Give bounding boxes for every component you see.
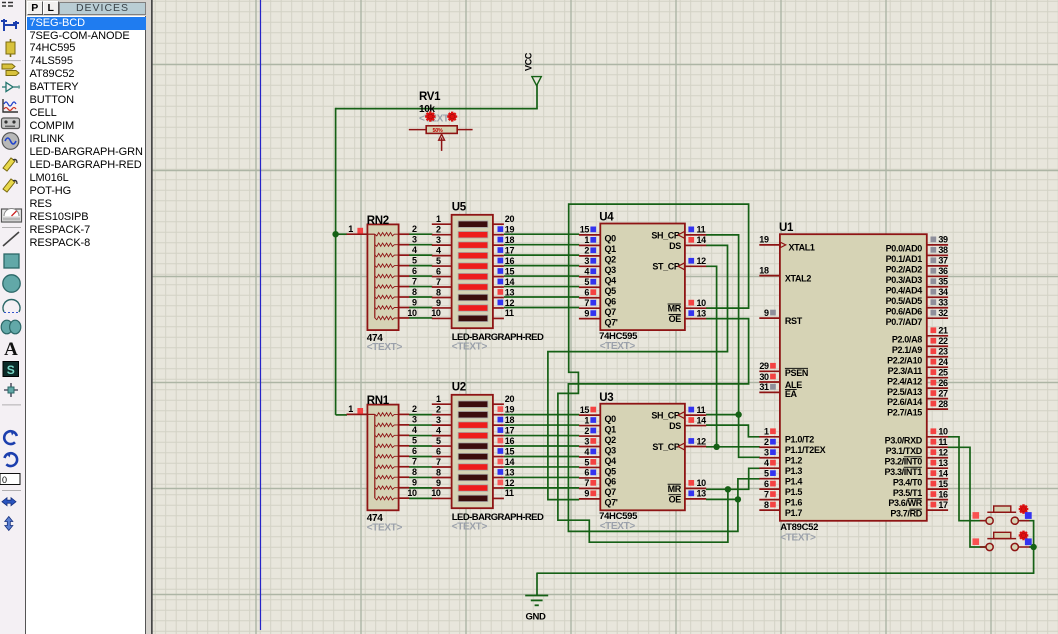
- svg-text:GND: GND: [526, 612, 547, 623]
- svg-text:37: 37: [938, 256, 948, 266]
- svg-text:19: 19: [505, 224, 515, 234]
- svg-text:14: 14: [697, 415, 707, 425]
- svg-text:Q7': Q7': [605, 317, 618, 327]
- svg-text:ST_CP: ST_CP: [652, 442, 680, 452]
- svg-text:U4: U4: [599, 212, 614, 224]
- svg-text:<TEXT>: <TEXT>: [600, 341, 636, 352]
- svg-text:<TEXT>: <TEXT>: [600, 521, 636, 532]
- svg-text:15: 15: [505, 266, 515, 276]
- svg-text:4: 4: [584, 267, 589, 277]
- svg-text:11: 11: [697, 225, 706, 235]
- svg-text:Q2: Q2: [605, 255, 617, 265]
- svg-text:9: 9: [764, 308, 769, 318]
- svg-text:P1.0/T2: P1.0/T2: [785, 435, 814, 445]
- svg-text:9: 9: [412, 297, 417, 307]
- svg-text:6: 6: [412, 266, 417, 276]
- svg-text:OE: OE: [669, 314, 682, 324]
- svg-text:18: 18: [505, 235, 515, 245]
- svg-text:3: 3: [436, 415, 441, 425]
- svg-text:17: 17: [505, 425, 515, 435]
- svg-text:P1.6: P1.6: [785, 497, 802, 507]
- svg-text:5: 5: [412, 436, 417, 446]
- svg-text:9: 9: [412, 477, 417, 487]
- svg-text:RN1: RN1: [367, 395, 390, 407]
- svg-text:<TEXT>: <TEXT>: [452, 522, 488, 533]
- svg-text:1: 1: [348, 404, 353, 414]
- svg-text:MR: MR: [668, 484, 682, 494]
- svg-text:15: 15: [580, 405, 590, 415]
- svg-text:14: 14: [938, 468, 948, 478]
- svg-text:ST_CP: ST_CP: [652, 262, 680, 272]
- svg-text:16: 16: [938, 489, 948, 499]
- svg-text:2: 2: [764, 437, 769, 447]
- svg-text:Q4: Q4: [605, 276, 617, 286]
- svg-text:1: 1: [348, 224, 353, 234]
- svg-text:3: 3: [412, 234, 417, 244]
- svg-text:MR: MR: [668, 304, 682, 314]
- svg-text:P0.6/AD6: P0.6/AD6: [886, 306, 923, 316]
- svg-text:Q3: Q3: [605, 265, 617, 275]
- svg-text:16: 16: [505, 256, 515, 266]
- svg-text:10: 10: [697, 478, 707, 488]
- svg-text:P2.4/A12: P2.4/A12: [887, 376, 922, 386]
- svg-text:14: 14: [505, 277, 515, 287]
- svg-text:U5: U5: [452, 201, 467, 213]
- svg-text:5: 5: [584, 457, 589, 467]
- svg-text:<TEXT>: <TEXT>: [367, 522, 403, 533]
- svg-text:15: 15: [938, 479, 948, 489]
- svg-text:16: 16: [505, 436, 515, 446]
- svg-text:50%: 50%: [433, 128, 443, 134]
- svg-text:7: 7: [436, 457, 441, 467]
- svg-text:14: 14: [505, 457, 515, 467]
- svg-text:8: 8: [412, 467, 417, 477]
- svg-text:3: 3: [436, 235, 441, 245]
- svg-text:Q4: Q4: [605, 456, 617, 466]
- svg-text:11: 11: [697, 405, 706, 415]
- svg-text:2: 2: [412, 224, 417, 234]
- svg-text:3: 3: [764, 448, 769, 458]
- svg-text:12: 12: [505, 478, 515, 488]
- svg-text:15: 15: [505, 446, 515, 456]
- svg-text:P2.3/A11: P2.3/A11: [888, 366, 923, 376]
- svg-text:29: 29: [759, 361, 769, 371]
- svg-text:15: 15: [580, 225, 590, 235]
- svg-text:27: 27: [938, 388, 948, 398]
- svg-text:21: 21: [938, 326, 948, 336]
- svg-text:17: 17: [938, 500, 948, 510]
- svg-text:20: 20: [505, 214, 515, 224]
- svg-text:12: 12: [505, 298, 515, 308]
- svg-text:RST: RST: [785, 316, 803, 326]
- svg-text:6: 6: [584, 468, 589, 478]
- svg-text:6: 6: [436, 266, 441, 276]
- svg-text:4: 4: [436, 245, 441, 255]
- svg-text:13: 13: [505, 467, 515, 477]
- svg-text:7: 7: [764, 489, 769, 499]
- svg-text:33: 33: [938, 298, 948, 308]
- svg-text:10: 10: [431, 308, 441, 318]
- svg-text:7: 7: [584, 298, 589, 308]
- svg-text:P1.7: P1.7: [785, 508, 802, 518]
- svg-text:17: 17: [505, 245, 515, 255]
- svg-text:28: 28: [938, 399, 948, 409]
- svg-text:XTAL1: XTAL1: [789, 243, 815, 253]
- svg-text:P3.0/RXD: P3.0/RXD: [885, 435, 923, 445]
- svg-text:SH_CP: SH_CP: [651, 230, 680, 240]
- svg-text:9: 9: [436, 298, 441, 308]
- svg-text:22: 22: [938, 336, 948, 346]
- svg-text:Q2: Q2: [605, 435, 617, 445]
- svg-text:XTAL2: XTAL2: [785, 273, 811, 283]
- svg-text:P1.4: P1.4: [785, 476, 802, 486]
- svg-text:10: 10: [431, 488, 441, 498]
- svg-text:7: 7: [412, 457, 417, 467]
- svg-text:19: 19: [759, 235, 769, 245]
- svg-text:P0.5/AD5: P0.5/AD5: [886, 296, 923, 306]
- svg-text:32: 32: [938, 308, 948, 318]
- svg-text:U2: U2: [452, 381, 466, 393]
- svg-text:P2.6/A14: P2.6/A14: [887, 397, 922, 407]
- svg-text:2: 2: [436, 404, 441, 414]
- svg-text:RN2: RN2: [367, 215, 389, 227]
- svg-text:8: 8: [764, 500, 769, 510]
- svg-text:4: 4: [584, 447, 589, 457]
- svg-text:2: 2: [584, 246, 589, 256]
- svg-text:P0.1/AD1: P0.1/AD1: [886, 254, 923, 264]
- svg-text:11: 11: [505, 308, 514, 318]
- svg-text:Q5: Q5: [605, 466, 617, 476]
- svg-text:14: 14: [697, 235, 707, 245]
- svg-text:18: 18: [505, 415, 515, 425]
- svg-text:39: 39: [938, 235, 948, 245]
- svg-text:P3.1/TXD: P3.1/TXD: [886, 446, 923, 456]
- svg-text:4: 4: [764, 458, 769, 468]
- svg-text:EA: EA: [785, 389, 798, 399]
- svg-text:1: 1: [436, 394, 441, 404]
- svg-text:7: 7: [412, 276, 417, 286]
- svg-text:36: 36: [938, 266, 948, 276]
- svg-text:VCC: VCC: [524, 52, 534, 71]
- svg-text:1: 1: [436, 214, 441, 224]
- svg-text:5: 5: [764, 468, 769, 478]
- svg-text:P3.6/WR: P3.6/WR: [888, 498, 922, 508]
- svg-text:2: 2: [436, 224, 441, 234]
- svg-text:P0.7/AD7: P0.7/AD7: [886, 317, 923, 327]
- svg-text:P0.0/AD0: P0.0/AD0: [886, 244, 923, 254]
- svg-text:26: 26: [938, 378, 948, 388]
- svg-text:25: 25: [938, 367, 948, 377]
- svg-text:5: 5: [436, 436, 441, 446]
- svg-text:9: 9: [584, 489, 589, 499]
- svg-text:9: 9: [584, 308, 589, 318]
- svg-text:12: 12: [938, 448, 948, 458]
- svg-text:Q1: Q1: [605, 424, 617, 434]
- svg-text:Q6: Q6: [605, 477, 617, 487]
- svg-text:P0.4/AD4: P0.4/AD4: [886, 285, 923, 295]
- svg-text:P3.3/INT1: P3.3/INT1: [885, 467, 923, 477]
- svg-text:20: 20: [505, 394, 515, 404]
- svg-text:Q7': Q7': [605, 498, 618, 508]
- svg-text:5: 5: [436, 256, 441, 266]
- svg-text:6: 6: [584, 288, 589, 298]
- svg-text:P1.2: P1.2: [785, 456, 802, 466]
- svg-text:7: 7: [584, 478, 589, 488]
- svg-text:10: 10: [407, 308, 417, 318]
- svg-text:1: 1: [584, 415, 589, 425]
- svg-text:P2.2/A10: P2.2/A10: [887, 355, 922, 365]
- svg-text:10: 10: [407, 488, 417, 498]
- svg-text:<TEXT>: <TEXT>: [367, 342, 403, 353]
- svg-text:8: 8: [412, 287, 417, 297]
- svg-text:SH_CP: SH_CP: [651, 411, 680, 421]
- svg-text:P2.7/A15: P2.7/A15: [887, 408, 922, 418]
- svg-text:23: 23: [938, 347, 948, 357]
- svg-text:8: 8: [436, 287, 441, 297]
- svg-text:P3.5/T1: P3.5/T1: [893, 488, 922, 498]
- svg-text:P3.4/T0: P3.4/T0: [893, 477, 922, 487]
- svg-text:P0.2/AD2: P0.2/AD2: [886, 264, 923, 274]
- svg-text:U1: U1: [779, 222, 794, 234]
- svg-text:7: 7: [436, 277, 441, 287]
- svg-text:PSEN: PSEN: [785, 368, 808, 378]
- svg-text:6: 6: [764, 479, 769, 489]
- svg-text:<TEXT>: <TEXT>: [452, 342, 488, 353]
- svg-text:OE: OE: [669, 494, 682, 504]
- svg-text:34: 34: [938, 287, 948, 297]
- svg-text:Q3: Q3: [605, 445, 617, 455]
- svg-text:12: 12: [697, 436, 707, 446]
- svg-text:P3.7/RD: P3.7/RD: [890, 509, 922, 519]
- svg-text:13: 13: [938, 458, 948, 468]
- svg-text:P2.1/A9: P2.1/A9: [892, 345, 922, 355]
- svg-text:10: 10: [697, 298, 707, 308]
- svg-text:P2.5/A13: P2.5/A13: [887, 387, 922, 397]
- svg-text:P3.2/INT0: P3.2/INT0: [885, 456, 923, 466]
- svg-text:5: 5: [584, 277, 589, 287]
- svg-text:2: 2: [584, 426, 589, 436]
- svg-text:13: 13: [505, 287, 515, 297]
- svg-text:1: 1: [584, 235, 589, 245]
- svg-text:Q7: Q7: [605, 487, 617, 497]
- svg-text:13: 13: [697, 489, 707, 499]
- svg-text:Q1: Q1: [605, 244, 617, 254]
- svg-text:Q7: Q7: [605, 307, 617, 317]
- svg-text:P1.1/T2EX: P1.1/T2EX: [785, 445, 826, 455]
- svg-text:S: S: [7, 363, 15, 377]
- svg-text:18: 18: [759, 265, 769, 275]
- svg-text:RV1: RV1: [419, 91, 441, 103]
- svg-text:U3: U3: [599, 392, 613, 404]
- svg-text:38: 38: [938, 245, 948, 255]
- svg-text:P1.5: P1.5: [785, 487, 802, 497]
- svg-text:35: 35: [938, 277, 948, 287]
- svg-text:Q0: Q0: [605, 414, 617, 424]
- svg-text:24: 24: [938, 357, 948, 367]
- svg-text:19: 19: [505, 404, 515, 414]
- svg-text:P2.0/A8: P2.0/A8: [892, 334, 922, 344]
- svg-text:30: 30: [759, 372, 769, 382]
- svg-text:11: 11: [505, 488, 514, 498]
- svg-text:9: 9: [436, 478, 441, 488]
- svg-text:DS: DS: [669, 241, 681, 251]
- svg-text:6: 6: [436, 446, 441, 456]
- svg-text:3: 3: [584, 436, 589, 446]
- svg-text:3: 3: [584, 256, 589, 266]
- svg-text:13: 13: [697, 308, 707, 318]
- svg-text:Q0: Q0: [605, 234, 617, 244]
- svg-text:P1.3: P1.3: [785, 466, 802, 476]
- svg-text:A: A: [4, 339, 18, 360]
- svg-text:0: 0: [2, 475, 7, 485]
- svg-text:DS: DS: [669, 421, 681, 431]
- svg-text:1: 1: [764, 427, 769, 437]
- svg-text:5: 5: [412, 255, 417, 265]
- svg-text:10: 10: [938, 427, 948, 437]
- svg-text:P0.3/AD3: P0.3/AD3: [886, 275, 923, 285]
- svg-text:4: 4: [412, 245, 417, 255]
- svg-text:31: 31: [759, 382, 769, 392]
- svg-text:4: 4: [412, 425, 417, 435]
- svg-text:3: 3: [412, 415, 417, 425]
- svg-text:2: 2: [412, 404, 417, 414]
- svg-text:Q5: Q5: [605, 286, 617, 296]
- svg-text:<TEXT>: <TEXT>: [780, 532, 816, 543]
- svg-text:Q6: Q6: [605, 297, 617, 307]
- svg-text:11: 11: [938, 437, 947, 447]
- svg-text:8: 8: [436, 467, 441, 477]
- svg-text:6: 6: [412, 446, 417, 456]
- svg-text:4: 4: [436, 425, 441, 435]
- svg-text:12: 12: [697, 256, 707, 266]
